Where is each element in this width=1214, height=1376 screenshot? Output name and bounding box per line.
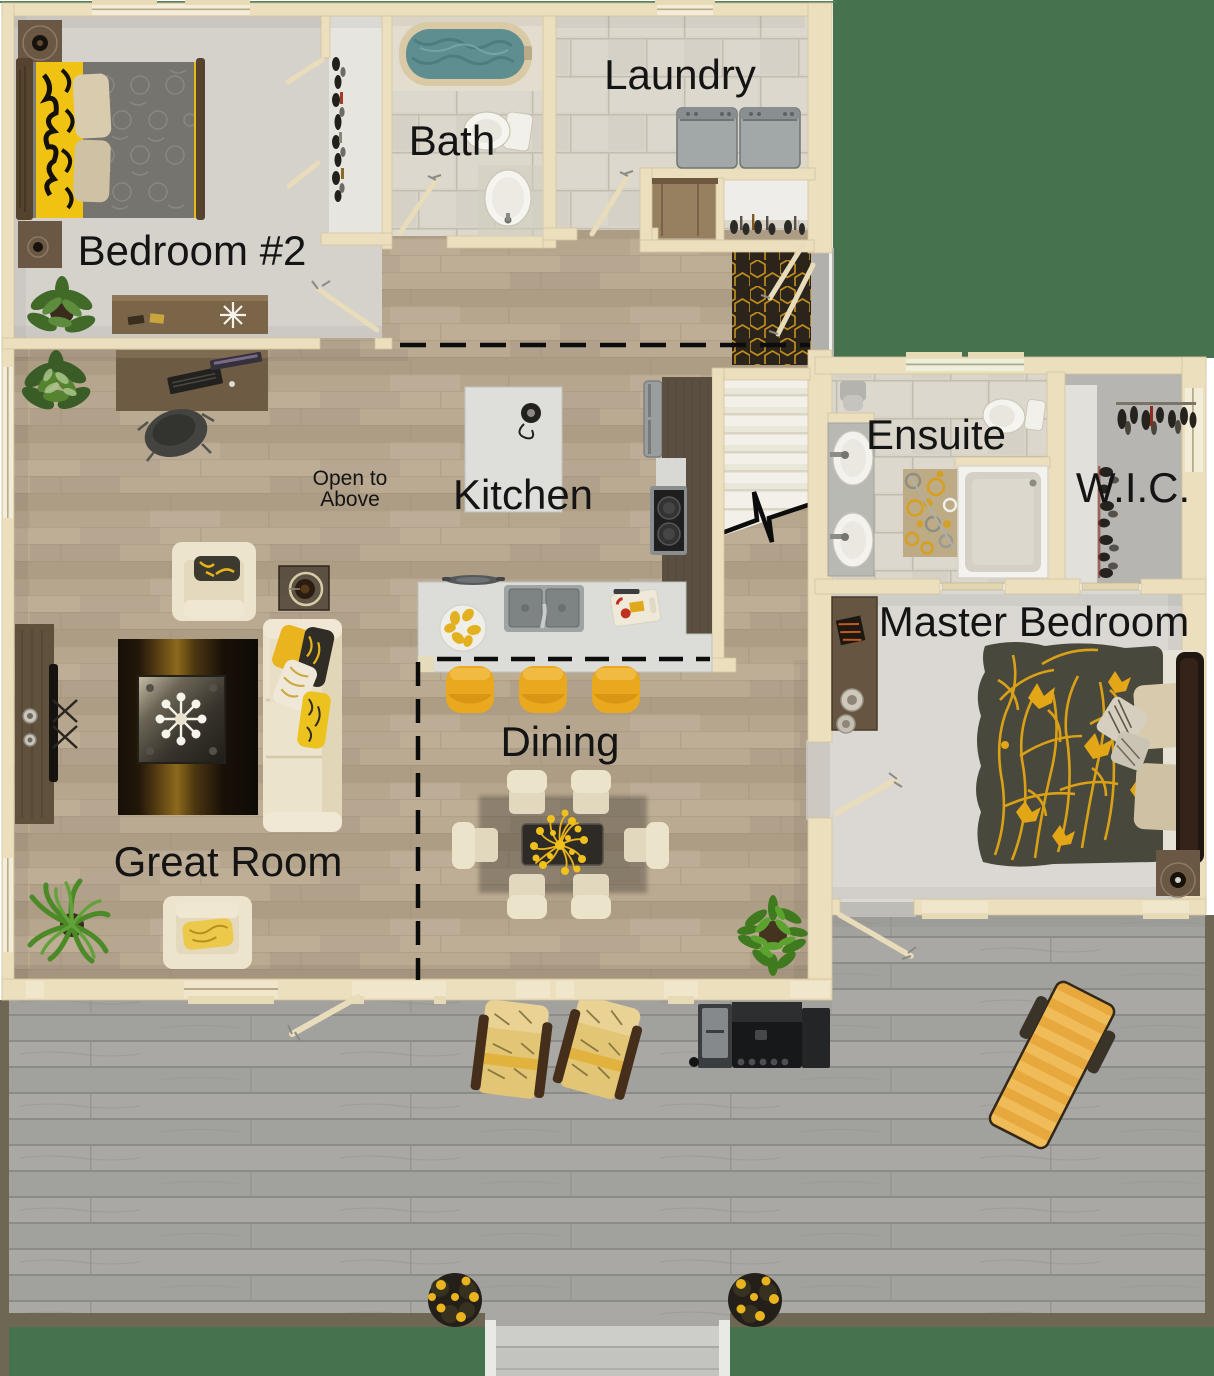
svg-text:Bath: Bath	[409, 117, 495, 164]
svg-text:Open to: Open to	[313, 467, 388, 490]
svg-text:Ensuite: Ensuite	[866, 411, 1006, 458]
svg-text:Bedroom #2: Bedroom #2	[78, 227, 307, 274]
svg-text:Kitchen: Kitchen	[453, 471, 593, 518]
svg-text:Master Bedroom: Master Bedroom	[879, 598, 1189, 645]
svg-text:W.I.C.: W.I.C.	[1076, 464, 1190, 511]
svg-text:Great Room: Great Room	[114, 838, 343, 885]
svg-text:Above: Above	[320, 488, 380, 511]
svg-text:Laundry: Laundry	[604, 51, 756, 98]
svg-text:Dining: Dining	[500, 718, 619, 765]
